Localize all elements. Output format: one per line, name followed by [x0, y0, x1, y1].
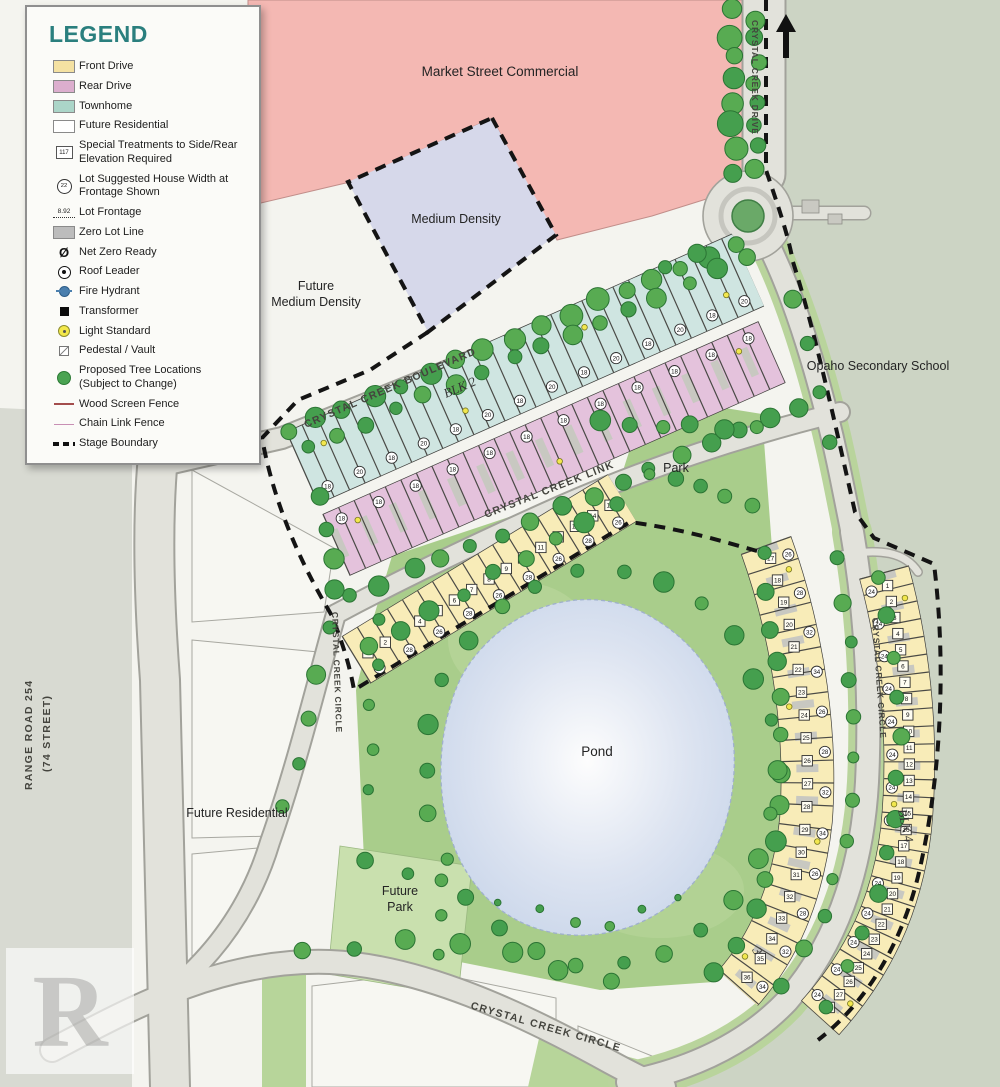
svg-text:7: 7: [470, 587, 474, 594]
lot-number: 20: [887, 888, 897, 898]
lot-number: 19: [892, 873, 902, 883]
svg-text:18: 18: [375, 499, 382, 506]
svg-text:24: 24: [863, 951, 871, 958]
lot-number: 6: [898, 661, 908, 671]
tree-icon: [533, 338, 549, 354]
tree-icon: [707, 258, 727, 278]
tree-icon: [347, 942, 361, 956]
lot-width-badge: 28: [404, 644, 415, 655]
lot-number: 14: [903, 792, 913, 802]
label-range-road-2: (74 STREET): [41, 695, 53, 772]
chain-fence-icon: [54, 424, 74, 425]
svg-text:25: 25: [803, 735, 811, 742]
tree-icon: [659, 261, 672, 274]
tree-icon: [764, 807, 777, 820]
lot-number: 27: [834, 990, 844, 1000]
svg-text:12: 12: [906, 761, 914, 768]
tree-icon: [728, 937, 744, 953]
svg-text:14: 14: [905, 794, 913, 801]
svg-text:24: 24: [833, 967, 840, 974]
svg-text:9: 9: [906, 712, 910, 719]
tree-icon: [688, 244, 706, 262]
svg-text:35: 35: [757, 956, 765, 963]
tree-icon: [618, 957, 630, 969]
tree-icon: [872, 571, 886, 585]
legend-item-special-treatments: 117Special Treatments to Side/RearElevat…: [49, 139, 247, 167]
lot-number: 35: [755, 953, 765, 963]
lot-width-badge: 26: [434, 626, 445, 637]
svg-text:18: 18: [645, 341, 652, 348]
svg-text:20: 20: [484, 412, 491, 419]
tree-icon: [762, 622, 779, 639]
lot-117-icon: 117: [56, 146, 73, 159]
svg-text:18: 18: [745, 336, 752, 343]
svg-text:28: 28: [803, 804, 811, 811]
svg-text:34: 34: [768, 936, 776, 943]
svg-text:20: 20: [613, 355, 620, 362]
svg-text:13: 13: [906, 778, 914, 785]
tree-icon: [435, 673, 448, 686]
tree-icon: [343, 589, 357, 603]
tree-icon: [747, 899, 766, 918]
tree-icon: [363, 699, 374, 710]
lot-number: 21: [882, 904, 892, 914]
svg-text:28: 28: [466, 611, 473, 618]
tree-icon: [717, 111, 743, 137]
tree-icon: [373, 659, 385, 671]
svg-text:24: 24: [801, 712, 809, 719]
lot-number: 34: [767, 934, 777, 944]
tree-icon: [405, 558, 425, 578]
svg-text:26: 26: [555, 556, 562, 563]
roundabout-island: [732, 200, 764, 232]
svg-text:22: 22: [795, 667, 803, 674]
tree-icon: [870, 885, 888, 903]
tree-icon: [773, 978, 789, 994]
tree-icon: [610, 497, 625, 512]
tree-icon: [418, 714, 438, 734]
svg-text:18: 18: [774, 577, 782, 584]
legend-panel: LEGEND Front Drive Rear Drive Townhome F…: [25, 5, 261, 465]
tree-icon: [673, 262, 687, 276]
legend-item-zero-lot-line: Zero Lot Line: [49, 226, 247, 240]
tree-icon: [644, 469, 655, 480]
svg-text:18: 18: [671, 368, 678, 375]
tree-icon: [307, 665, 326, 684]
tree-icon: [549, 532, 562, 545]
svg-text:11: 11: [538, 545, 545, 552]
tree-icon: [657, 421, 670, 434]
tree-icon: [281, 424, 297, 440]
tree-icon: [503, 942, 523, 962]
tree-icon: [813, 386, 826, 399]
tree-icon: [367, 744, 379, 756]
lot-number: 25: [801, 733, 811, 743]
lot-width-badge: 18: [578, 367, 589, 378]
lot-number: 32: [785, 891, 795, 901]
legend-item-rear-drive: Rear Drive: [49, 80, 247, 94]
label-school: Opaho Secondary School: [807, 359, 949, 373]
svg-text:6: 6: [453, 597, 457, 604]
legend-item-front-drive: Front Drive: [49, 60, 247, 74]
tree-icon: [486, 564, 501, 579]
legend-item-stage-boundary: Stage Boundary: [49, 437, 247, 451]
svg-text:28: 28: [796, 590, 803, 597]
lot-width-badge: 18: [410, 480, 421, 491]
tree-icon: [495, 599, 510, 614]
svg-text:18: 18: [516, 398, 523, 405]
tree-icon: [893, 728, 910, 745]
svg-text:31: 31: [793, 872, 801, 879]
tree-icon: [834, 594, 851, 611]
svg-text:18: 18: [388, 455, 395, 462]
west-margin: [0, 408, 132, 1087]
lot-width-badge: 20: [354, 466, 365, 477]
lot-number: 36: [742, 972, 752, 982]
lot-width-badge: 18: [514, 395, 525, 406]
tree-icon: [681, 416, 698, 433]
svg-text:18: 18: [560, 417, 567, 424]
svg-text:20: 20: [741, 298, 748, 305]
lot-width-badge: 20: [611, 352, 622, 363]
tree-icon: [768, 652, 786, 670]
tree-icon: [619, 283, 635, 299]
tree-icon: [419, 601, 439, 621]
svg-text:26: 26: [495, 592, 502, 599]
tree-icon: [772, 688, 789, 705]
svg-text:24: 24: [850, 939, 857, 946]
tree-icon: [492, 920, 508, 936]
svg-text:18: 18: [708, 352, 715, 359]
label-range-road-1: RANGE ROAD 254: [23, 680, 35, 790]
svg-text:30: 30: [798, 849, 806, 856]
lot-width-badge: 18: [643, 338, 654, 349]
tree-icon: [521, 513, 538, 530]
tree-icon: [459, 631, 478, 650]
svg-text:18: 18: [597, 401, 604, 408]
svg-text:18: 18: [412, 483, 419, 490]
lot-number: 24: [799, 710, 809, 720]
stage-boundary-icon: [53, 442, 75, 445]
tree-icon: [616, 474, 632, 490]
tree-icon: [504, 329, 525, 350]
tree-icon: [841, 960, 854, 973]
light-standard-icon: [736, 349, 742, 355]
svg-text:27: 27: [836, 992, 844, 999]
tree-icon: [818, 909, 831, 922]
tree-icon: [302, 440, 315, 453]
tree-icon: [585, 488, 603, 506]
lot-width-badge: 24: [887, 749, 898, 760]
lot-number: 4: [893, 628, 903, 638]
svg-text:32: 32: [806, 629, 813, 636]
svg-text:34: 34: [813, 669, 820, 676]
lot-width-badge: 18: [450, 424, 461, 435]
tree-icon: [319, 522, 334, 537]
tree-icon: [757, 872, 773, 888]
lot-number: 25: [853, 963, 863, 973]
svg-text:20: 20: [677, 327, 684, 334]
lot-number: 30: [796, 847, 806, 857]
tree-icon: [830, 551, 844, 565]
tree-icon: [536, 905, 544, 913]
lot-number: 22: [876, 919, 886, 929]
svg-text:4: 4: [896, 631, 900, 638]
tree-icon: [715, 420, 734, 439]
tree-icon: [330, 428, 345, 443]
tree-icon: [765, 714, 777, 726]
tree-icon: [647, 288, 667, 308]
svg-text:23: 23: [798, 689, 806, 696]
lot-number: 9: [903, 710, 913, 720]
tree-icon: [694, 479, 708, 493]
legend-item-light-standard: Light Standard: [49, 325, 247, 339]
label-pond: Pond: [581, 744, 613, 759]
lot-number: 9: [501, 563, 511, 573]
lot-width-badge: 34: [811, 666, 822, 677]
lot-width-badge: 20: [675, 324, 686, 335]
light-standard-icon: [902, 595, 908, 601]
svg-text:25: 25: [855, 965, 863, 972]
roof-leader-icon: [58, 266, 71, 279]
legend-item-house-width: 22Lot Suggested House Width atFrontage S…: [49, 173, 247, 201]
tree-icon: [563, 325, 583, 345]
fire-hydrant-icon: [59, 286, 70, 297]
tree-icon: [726, 48, 742, 64]
lot-width-badge: 18: [595, 398, 606, 409]
tree-icon: [432, 550, 449, 567]
tree-icon: [433, 949, 444, 960]
zero-lot-line-swatch: [53, 226, 75, 239]
svg-text:20: 20: [356, 469, 363, 476]
lot-width-badge: 18: [706, 349, 717, 360]
svg-text:19: 19: [780, 599, 788, 606]
tree-icon: [574, 512, 594, 532]
svg-text:32: 32: [782, 949, 789, 956]
lot-width-badge: 28: [819, 746, 830, 757]
svg-text:28: 28: [525, 574, 532, 581]
svg-text:34: 34: [819, 831, 826, 838]
tree-icon: [840, 834, 853, 847]
legend-item-wood-screen-fence: Wood Screen Fence: [49, 398, 247, 412]
lot-number: 19: [779, 597, 789, 607]
svg-text:18: 18: [338, 516, 345, 523]
svg-text:20: 20: [420, 441, 427, 448]
tree-icon: [618, 565, 632, 579]
tree-icon: [846, 793, 860, 807]
tree-icon: [800, 336, 814, 350]
tree-icon: [528, 943, 545, 960]
label-future-park-1: Future: [382, 884, 418, 898]
lot-width-badge: 28: [463, 608, 474, 619]
tree-icon: [827, 874, 838, 885]
light-standard-icon: [786, 567, 792, 573]
svg-text:1: 1: [886, 583, 890, 590]
legend-item-chain-link-fence: Chain Link Fence: [49, 417, 247, 431]
lot-width-badge: 24: [866, 586, 877, 597]
svg-text:21: 21: [791, 644, 799, 651]
lot-width-badge: 24: [812, 989, 823, 1000]
tree-icon: [532, 316, 551, 335]
tree-icon: [402, 868, 414, 880]
svg-text:20: 20: [549, 384, 556, 391]
svg-text:29: 29: [801, 827, 809, 834]
lot-width-badge: 26: [783, 549, 794, 560]
tree-icon: [819, 1000, 833, 1014]
lot-number: 23: [796, 687, 806, 697]
light-standard-icon: [742, 954, 748, 960]
svg-text:34: 34: [759, 984, 766, 991]
tree-icon: [450, 934, 471, 955]
label-future-park-2: Park: [387, 900, 413, 914]
tree-icon: [656, 946, 673, 963]
tree-icon: [301, 711, 316, 726]
svg-text:11: 11: [906, 745, 913, 752]
tree-icon: [790, 399, 808, 417]
svg-text:24: 24: [889, 752, 896, 759]
tree-icon: [684, 277, 697, 290]
svg-text:18: 18: [486, 450, 493, 457]
tree-icon: [887, 651, 900, 664]
svg-text:26: 26: [615, 520, 622, 527]
tree-icon: [704, 963, 723, 982]
tree-icon: [888, 770, 903, 785]
tree-icon: [360, 637, 377, 654]
svg-text:24: 24: [864, 911, 871, 918]
light-standard-icon: [786, 704, 792, 710]
tree-icon: [718, 489, 732, 503]
tree-icon: [890, 690, 904, 704]
tree-icon: [586, 288, 609, 311]
svg-text:21: 21: [884, 906, 892, 913]
svg-text:18: 18: [452, 426, 459, 433]
tree-icon: [325, 580, 344, 599]
tree-icon: [739, 249, 756, 266]
lot-width-badge: 28: [583, 535, 594, 546]
lot-width-badge: 18: [484, 447, 495, 458]
legend-item-roof-leader: Roof Leader: [49, 265, 247, 279]
legend-item-net-zero: ØNet Zero Ready: [49, 246, 247, 260]
tree-icon: [855, 926, 869, 940]
tree-icon: [294, 942, 310, 958]
tree-icon: [57, 371, 71, 385]
lot-number: 29: [800, 824, 810, 834]
svg-text:2: 2: [890, 599, 894, 606]
tree-icon: [458, 589, 470, 601]
tree-icon: [641, 269, 661, 289]
label-market-street-commercial: Market Street Commercial: [422, 64, 579, 79]
front-drive-swatch: [53, 60, 75, 73]
pedestal-vault-icon: [59, 346, 69, 356]
tree-icon: [694, 923, 708, 937]
lot-width-badge: 18: [373, 496, 384, 507]
tree-icon: [571, 564, 584, 577]
tree-icon: [621, 302, 636, 317]
tree-icon: [603, 973, 619, 989]
svg-text:7: 7: [903, 680, 907, 687]
lot-width-badge: 18: [386, 452, 397, 463]
lot-width-badge: 26: [816, 706, 827, 717]
lot-width-badge: 20: [482, 409, 493, 420]
tree-icon: [717, 25, 742, 50]
light-standard-icon: [557, 459, 563, 465]
tree-icon: [846, 710, 860, 724]
pond-shape: [441, 600, 734, 936]
lot-number: 23: [869, 934, 879, 944]
tree-icon: [560, 304, 583, 327]
lot-width-badge: 34: [757, 981, 768, 992]
legend-item-transformer: Transformer: [49, 305, 247, 319]
svg-text:18: 18: [709, 313, 716, 320]
light-standard-icon: [355, 517, 361, 523]
label-medium-density: Medium Density: [411, 212, 501, 226]
svg-text:26: 26: [785, 552, 792, 559]
lot-width-badge: 34: [817, 828, 828, 839]
tree-icon: [796, 940, 813, 957]
tree-icon: [695, 597, 708, 610]
townhome-swatch: [53, 100, 75, 113]
label-future-medium-1: Future: [298, 279, 334, 293]
legend-item-proposed-trees: Proposed Tree Locations(Subject to Chang…: [49, 364, 247, 392]
lot-width-badge: 18: [336, 513, 347, 524]
lot-number: 26: [802, 756, 812, 766]
tree-icon: [311, 488, 329, 506]
tree-icon: [724, 164, 742, 182]
svg-text:32: 32: [822, 789, 829, 796]
svg-text:26: 26: [846, 979, 854, 986]
label-future-residential: Future Residential: [186, 806, 287, 820]
rear-drive-swatch: [53, 80, 75, 93]
tree-icon: [508, 350, 522, 364]
svg-text:28: 28: [406, 647, 413, 654]
lot-number: 2: [886, 596, 896, 606]
lot-width-badge: 18: [669, 365, 680, 376]
tree-icon: [725, 626, 744, 645]
lot-number: 26: [844, 976, 854, 986]
tree-icon: [593, 316, 608, 331]
tree-icon: [414, 386, 431, 403]
svg-text:18: 18: [523, 434, 530, 441]
light-standard-icon: [463, 408, 469, 414]
tree-icon: [654, 572, 675, 593]
svg-text:18: 18: [897, 859, 905, 866]
lot-width-badge: 18: [632, 382, 643, 393]
svg-text:5: 5: [899, 647, 903, 654]
svg-text:20: 20: [786, 622, 794, 629]
svg-text:20: 20: [889, 891, 897, 898]
tree-icon: [369, 576, 389, 596]
svg-text:8: 8: [905, 696, 909, 703]
light-standard-icon: [848, 1001, 854, 1007]
svg-text:6: 6: [901, 663, 905, 670]
tree-icon: [420, 763, 435, 778]
tree-icon: [436, 910, 447, 921]
lot-width-badge: 28: [797, 908, 808, 919]
svg-text:28: 28: [585, 538, 592, 545]
lot-width-badge: 32: [780, 946, 791, 957]
lot-number: 24: [861, 949, 871, 959]
tree-icon: [553, 497, 572, 516]
tree-icon: [841, 673, 856, 688]
svg-text:26: 26: [812, 871, 819, 878]
svg-text:2: 2: [383, 639, 387, 646]
lot-number: 18: [896, 857, 906, 867]
tree-icon: [745, 498, 760, 513]
net-zero-icon: Ø: [59, 246, 69, 259]
tree-icon: [880, 846, 894, 860]
tree-icon: [749, 849, 769, 869]
light-standard-icon: [814, 839, 820, 845]
